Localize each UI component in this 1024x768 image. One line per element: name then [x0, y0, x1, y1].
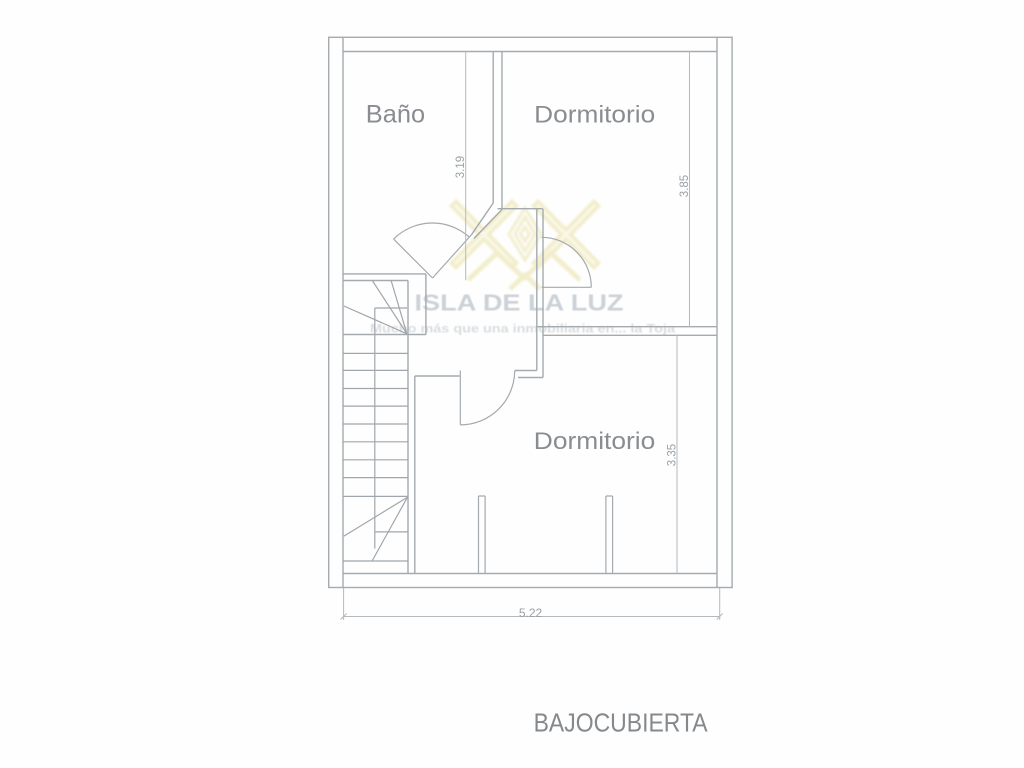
svg-text:Dormitorio: Dormitorio: [534, 102, 655, 129]
svg-text:3.85: 3.85: [679, 175, 691, 197]
svg-text:5.22: 5.22: [519, 606, 543, 620]
svg-text:ISLA DE LA LUZ: ISLA DE LA LUZ: [415, 290, 624, 316]
svg-text:BAJOCUBIERTA: BAJOCUBIERTA: [534, 707, 709, 737]
svg-text:Baño: Baño: [366, 101, 425, 129]
svg-text:Mucho más que una inmobiliaria: Mucho más que una inmobiliaria en... la …: [370, 324, 676, 336]
svg-text:3.35: 3.35: [667, 444, 679, 466]
svg-text:3.19: 3.19: [455, 156, 467, 178]
svg-text:Dormitorio: Dormitorio: [534, 428, 656, 455]
